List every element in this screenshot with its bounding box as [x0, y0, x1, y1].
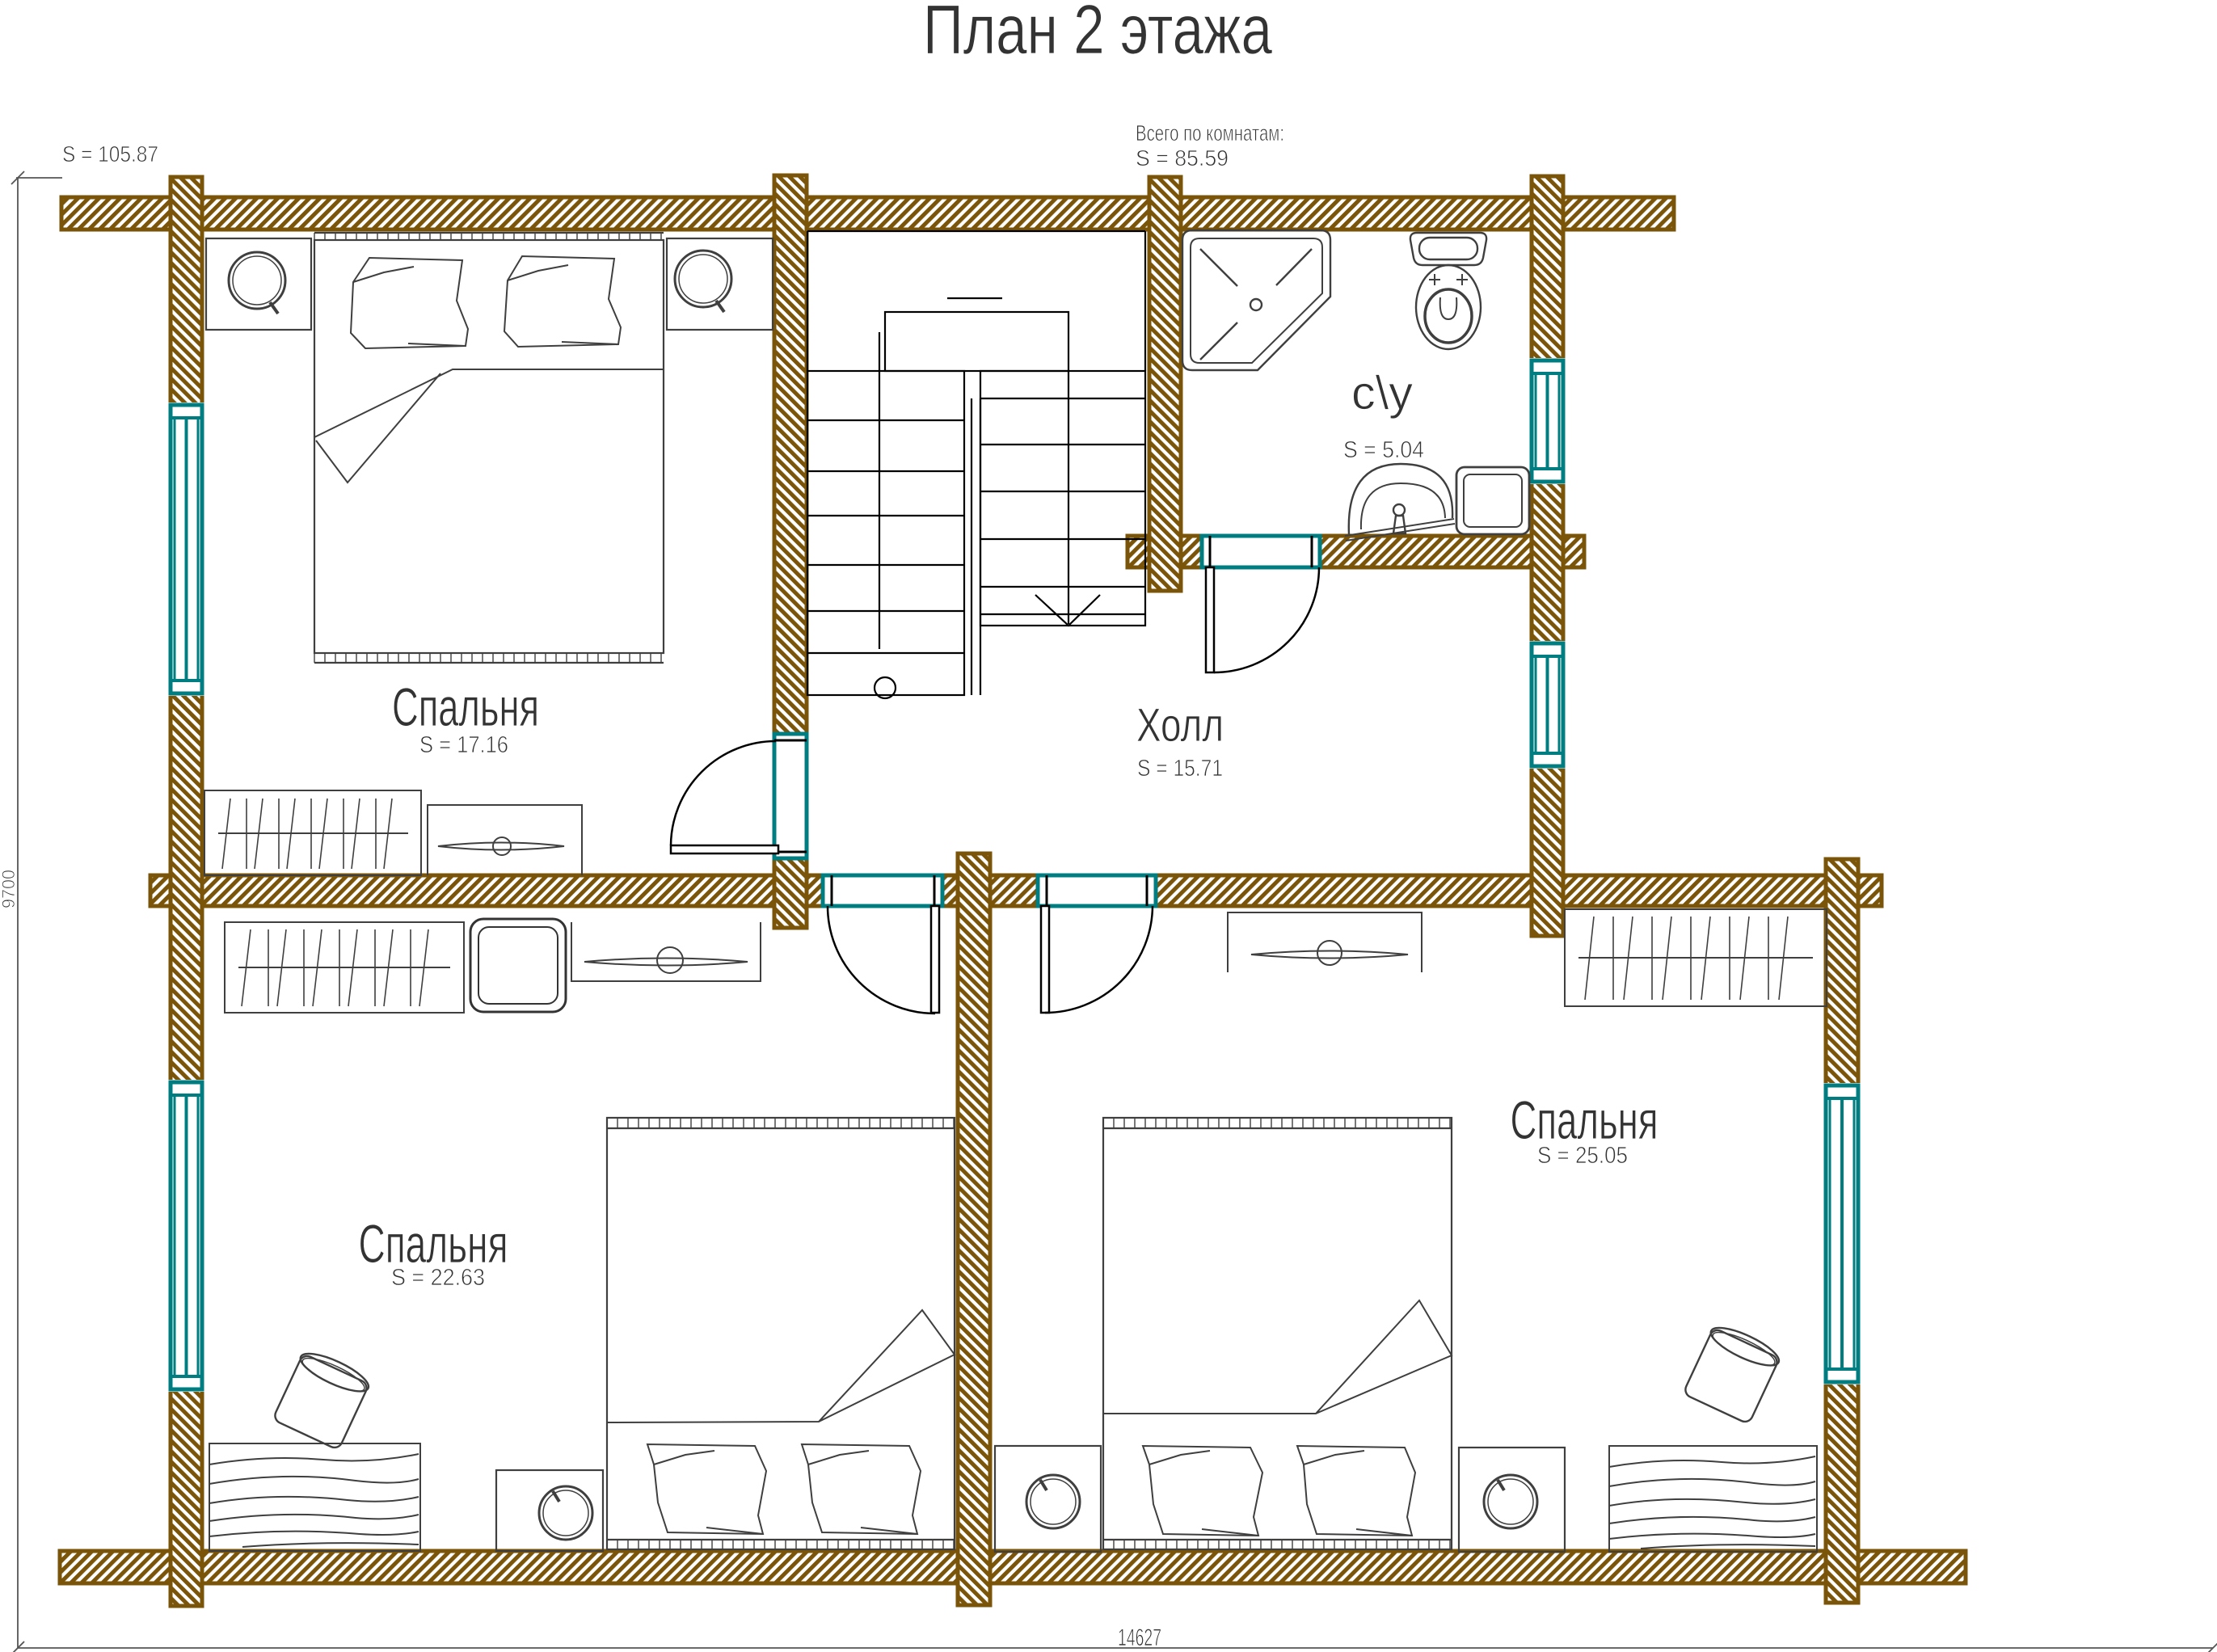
svg-text:S = 22.63: S = 22.63 [391, 1265, 485, 1291]
svg-text:14627: 14627 [1118, 1625, 1161, 1651]
svg-text:S = 85.59: S = 85.59 [1136, 145, 1229, 171]
svg-text:План 2 этажа: План 2 этажа [923, 0, 1272, 69]
svg-text:Всего по комнатам:: Всего по комнатам: [1136, 120, 1284, 145]
svg-text:Холл: Холл [1136, 699, 1224, 752]
svg-text:Спальня: Спальня [392, 677, 539, 738]
svg-text:S = 17.16: S = 17.16 [419, 732, 508, 758]
svg-text:S = 15.71: S = 15.71 [1137, 756, 1223, 782]
svg-text:S = 25.05: S = 25.05 [1537, 1143, 1628, 1169]
svg-text:9700: 9700 [0, 870, 19, 908]
svg-text:S = 5.04: S = 5.04 [1343, 437, 1424, 463]
svg-text:с\у: с\у [1351, 367, 1413, 419]
svg-text:S = 105.87: S = 105.87 [62, 141, 158, 166]
svg-text:Спальня: Спальня [1511, 1090, 1659, 1151]
